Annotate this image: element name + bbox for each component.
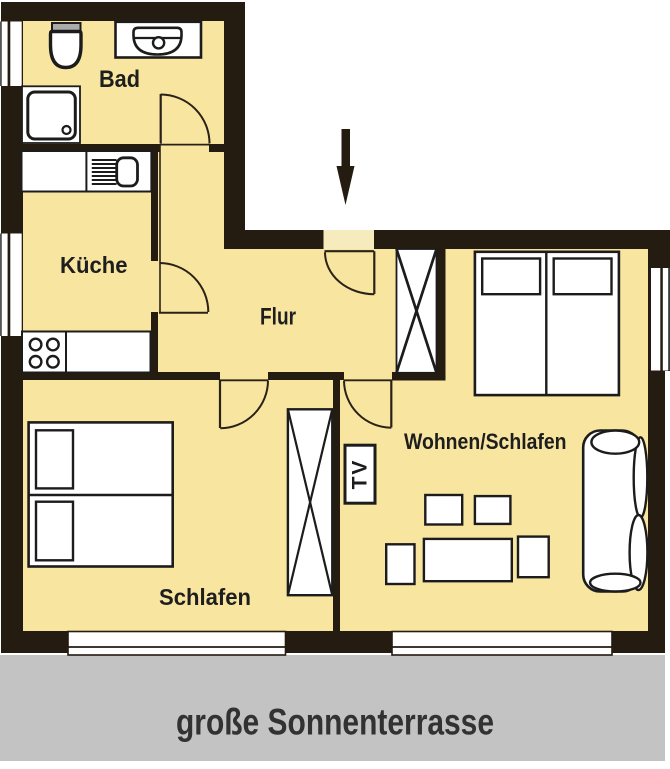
svg-text:TV: TV: [349, 459, 372, 490]
svg-text:große Sonnenterrasse: große Sonnenterrasse: [176, 702, 494, 743]
svg-text:Wohnen/Schlafen: Wohnen/Schlafen: [404, 429, 567, 454]
svg-text:Küche: Küche: [60, 252, 128, 278]
svg-text:Flur: Flur: [260, 304, 296, 331]
svg-text:Bad: Bad: [99, 66, 140, 93]
svg-text:Schlafen: Schlafen: [159, 584, 251, 610]
